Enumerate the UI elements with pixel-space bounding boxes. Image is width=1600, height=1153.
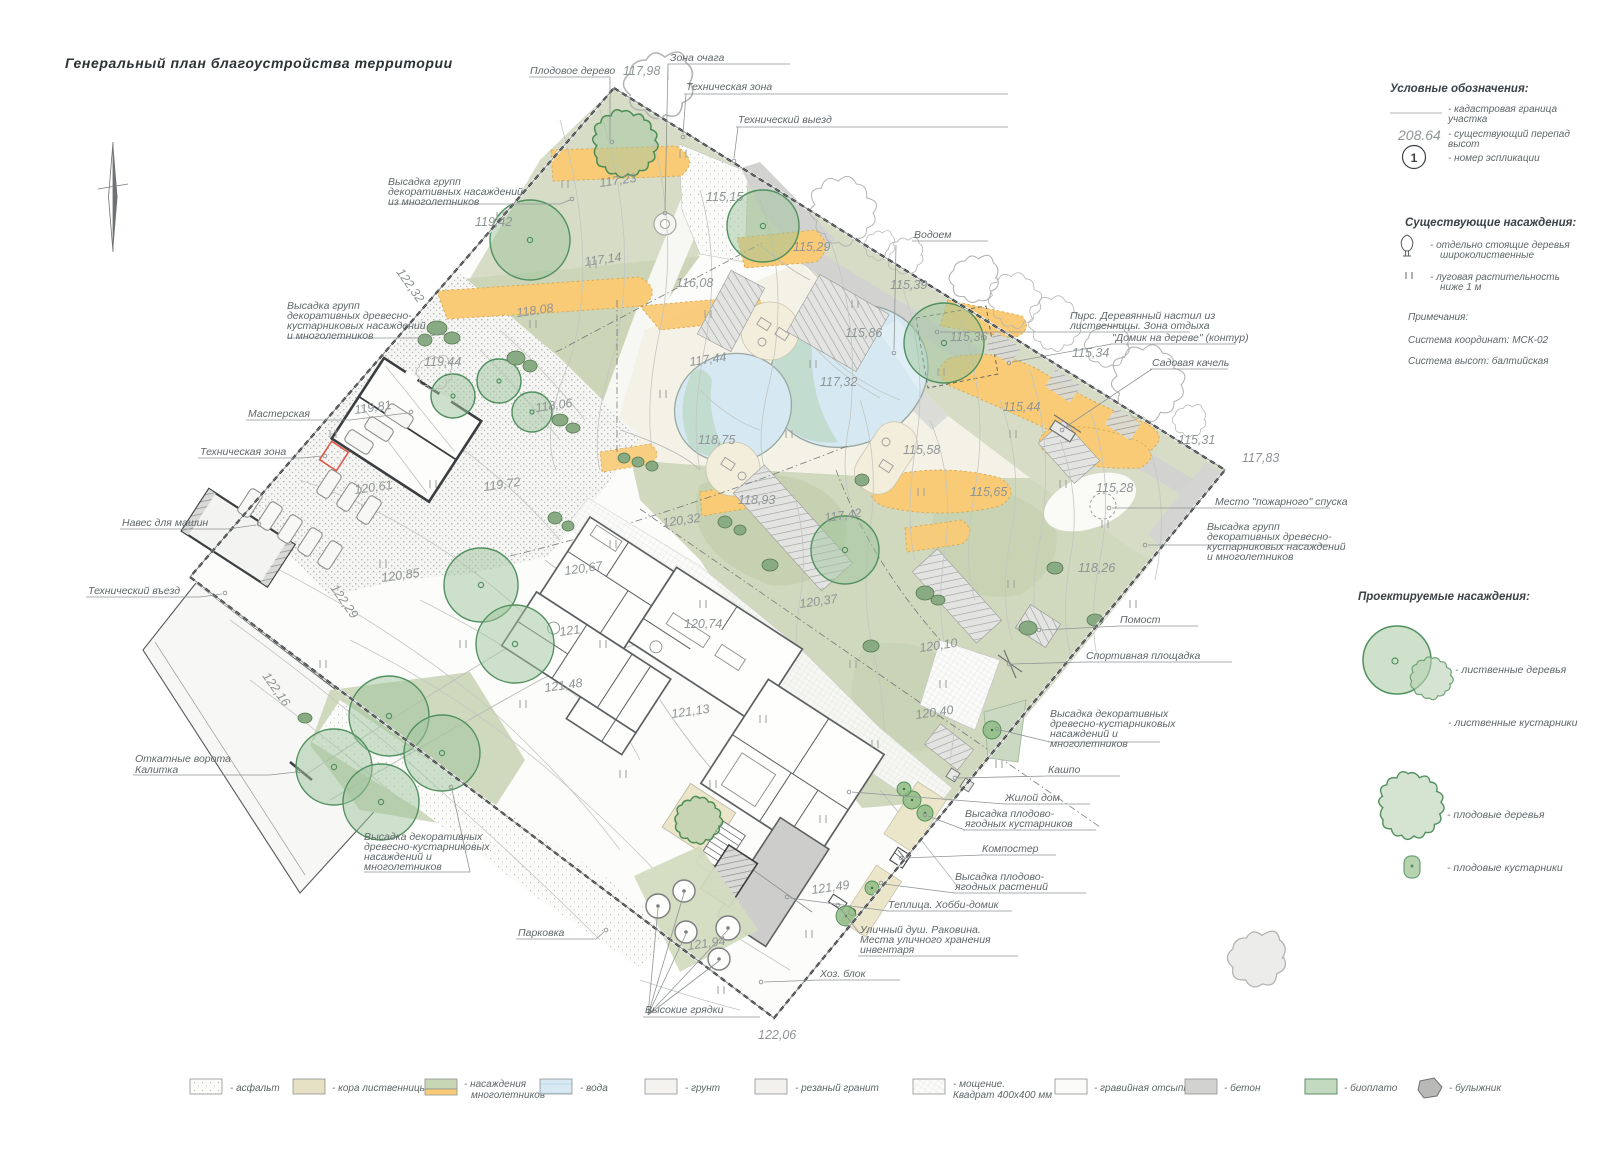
svg-text:Существующие насаждения:: Существующие насаждения: bbox=[1405, 217, 1576, 229]
svg-text:- биоплато: - биоплато bbox=[1344, 1082, 1398, 1094]
svg-text:119,42: 119,42 bbox=[475, 215, 512, 229]
svg-text:Технический въезд: Технический въезд bbox=[88, 585, 180, 597]
svg-text:и многолетников: и многолетников bbox=[287, 330, 374, 342]
svg-text:118,26: 118,26 bbox=[1078, 561, 1115, 575]
svg-text:ягодных кустарников: ягодных кустарников bbox=[964, 818, 1073, 830]
svg-text:Условные обозначения:: Условные обозначения: bbox=[1390, 83, 1529, 95]
svg-text:208.64: 208.64 bbox=[1397, 127, 1441, 143]
svg-text:Жилой дом: Жилой дом bbox=[1004, 792, 1060, 804]
svg-text:Система координат: МСК-02: Система координат: МСК-02 bbox=[1408, 335, 1549, 346]
svg-text:ниже 1 м: ниже 1 м bbox=[1440, 282, 1482, 293]
svg-text:Хоз. блок: Хоз. блок bbox=[819, 968, 867, 980]
svg-text:Калитка: Калитка bbox=[135, 764, 178, 776]
svg-text:Система высот: балтийская: Система высот: балтийская bbox=[1408, 355, 1549, 367]
svg-text:Проектируемые насаждения:: Проектируемые насаждения: bbox=[1358, 591, 1530, 603]
svg-text:115,34: 115,34 bbox=[1072, 346, 1109, 360]
svg-text:Парковка: Парковка bbox=[518, 927, 565, 939]
svg-text:Теплица. Хобби-домик: Теплица. Хобби-домик bbox=[888, 899, 1000, 911]
svg-text:- булыжник: - булыжник bbox=[1449, 1082, 1502, 1094]
svg-text:Садовая качель: Садовая качель bbox=[1152, 357, 1229, 369]
svg-text:Мастерская: Мастерская bbox=[248, 408, 310, 420]
svg-text:Технический выезд: Технический выезд bbox=[738, 114, 832, 126]
svg-text:122,06: 122,06 bbox=[758, 1028, 796, 1042]
svg-text:115,58: 115,58 bbox=[903, 443, 940, 457]
svg-text:многолетников: многолетников bbox=[1050, 738, 1128, 750]
svg-text:118,75: 118,75 bbox=[698, 433, 735, 447]
svg-text:Высокие грядки: Высокие грядки bbox=[645, 1004, 724, 1016]
svg-text:115,39: 115,39 bbox=[890, 278, 927, 292]
svg-text:участка: участка bbox=[1447, 114, 1488, 125]
svg-text:115,31: 115,31 bbox=[1178, 433, 1215, 447]
svg-text:Техническая зона: Техническая зона bbox=[200, 446, 286, 458]
svg-text:- бетон: - бетон bbox=[1224, 1082, 1261, 1094]
svg-text:118,93: 118,93 bbox=[738, 493, 775, 507]
svg-text:115,28: 115,28 bbox=[1096, 481, 1133, 495]
svg-text:многолетников: многолетников bbox=[364, 861, 442, 873]
svg-text:Спортивная площадка: Спортивная площадка bbox=[1086, 650, 1200, 662]
svg-text:- резаный гранит: - резаный гранит bbox=[795, 1083, 879, 1094]
svg-text:Водоем: Водоем bbox=[914, 229, 951, 241]
svg-text:- плодовые деревья: - плодовые деревья bbox=[1447, 809, 1545, 821]
svg-text:многолетников: многолетников bbox=[471, 1090, 545, 1101]
svg-text:115,15: 115,15 bbox=[706, 190, 743, 204]
svg-text:- номер эспликации: - номер эспликации bbox=[1448, 153, 1540, 164]
svg-text:121: 121 bbox=[558, 622, 581, 639]
svg-text:Зона очага: Зона очага bbox=[670, 52, 725, 64]
svg-text:Навес для машин: Навес для машин bbox=[122, 517, 208, 529]
svg-text:"Домик на дереве" (контур): "Домик на дереве" (контур) bbox=[1112, 332, 1249, 344]
svg-text:- лиственные деревья: - лиственные деревья bbox=[1455, 664, 1567, 676]
svg-text:из многолетников: из многолетников bbox=[388, 196, 480, 208]
svg-text:Квадрат 400х400 мм: Квадрат 400х400 мм bbox=[953, 1090, 1052, 1101]
svg-text:117,98: 117,98 bbox=[623, 64, 660, 78]
svg-text:Техническая зона: Техническая зона bbox=[686, 81, 772, 93]
svg-text:119,44: 119,44 bbox=[424, 355, 461, 369]
svg-text:117,32: 117,32 bbox=[820, 375, 857, 389]
svg-text:Кашпо: Кашпо bbox=[1048, 764, 1081, 776]
svg-text:115,36: 115,36 bbox=[950, 330, 987, 344]
svg-text:116,08: 116,08 bbox=[676, 276, 713, 290]
svg-text:- грунт: - грунт bbox=[685, 1083, 720, 1094]
svg-text:широколиственные: широколиственные bbox=[1440, 250, 1535, 261]
svg-text:- мощение.: - мощение. bbox=[953, 1079, 1005, 1090]
svg-text:117,83: 117,83 bbox=[1242, 451, 1279, 465]
svg-text:Генеральный план благоустройст: Генеральный план благоустройства террито… bbox=[65, 55, 453, 71]
svg-text:- асфальт: - асфальт bbox=[230, 1082, 280, 1094]
svg-text:- гравийная отсыпка: - гравийная отсыпка bbox=[1094, 1083, 1194, 1094]
svg-text:Компостер: Компостер bbox=[982, 843, 1039, 855]
svg-text:115,29: 115,29 bbox=[793, 240, 830, 254]
svg-text:- вода: - вода bbox=[580, 1083, 608, 1094]
svg-text:высот: высот bbox=[1448, 139, 1479, 150]
svg-text:- плодовые кустарники: - плодовые кустарники bbox=[1447, 862, 1563, 874]
svg-text:и многолетников: и многолетников bbox=[1207, 551, 1294, 563]
svg-text:лиственницы. Зона отдыха: лиственницы. Зона отдыха bbox=[1069, 320, 1210, 332]
svg-text:ягодных растений: ягодных растений bbox=[954, 881, 1048, 893]
svg-text:Плодовое дерево: Плодовое дерево bbox=[530, 65, 615, 77]
svg-text:- кора лиственницы: - кора лиственницы bbox=[332, 1083, 428, 1094]
svg-text:Место "пожарного" спуска: Место "пожарного" спуска bbox=[1215, 496, 1348, 508]
svg-text:120,74: 120,74 bbox=[684, 617, 722, 631]
svg-text:Примечания:: Примечания: bbox=[1408, 312, 1468, 323]
svg-text:- насаждения: - насаждения bbox=[464, 1079, 527, 1090]
svg-text:115,44: 115,44 bbox=[1003, 400, 1040, 414]
svg-text:инвентаря: инвентаря bbox=[860, 944, 915, 956]
svg-text:1: 1 bbox=[1411, 151, 1418, 165]
svg-text:Помост: Помост bbox=[1120, 614, 1161, 626]
svg-text:- лиственные кустарники: - лиственные кустарники bbox=[1448, 717, 1578, 729]
svg-text:115,65: 115,65 bbox=[970, 485, 1007, 499]
svg-text:115,86: 115,86 bbox=[845, 326, 882, 340]
